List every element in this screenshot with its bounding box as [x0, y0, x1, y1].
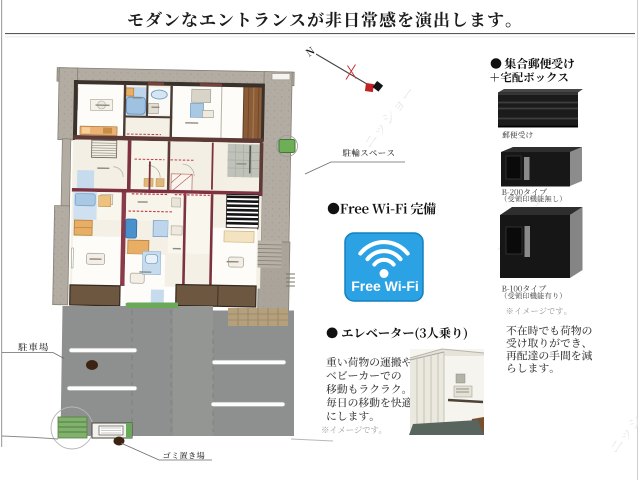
svg-text:Free Wi-Fi: Free Wi-Fi [351, 278, 419, 294]
